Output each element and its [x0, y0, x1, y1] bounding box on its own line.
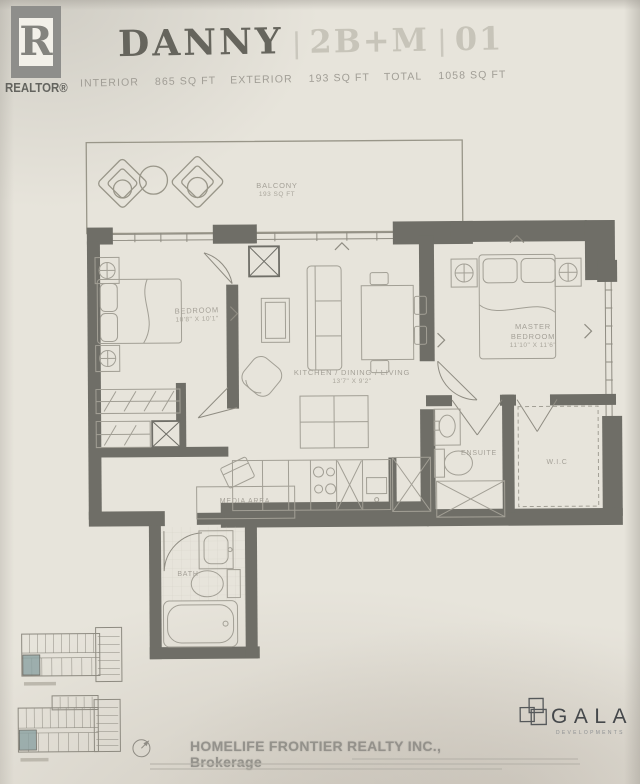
balcony-dim: 193 SQ FT — [256, 191, 297, 200]
floorplan-drawing — [0, 0, 640, 784]
master-bedroom-dim: 11'10" X 11'6" — [497, 342, 569, 351]
wic-outline — [517, 399, 599, 507]
bedroom-dim: 10'8" X 10'1" — [175, 315, 220, 325]
structural-columns — [151, 246, 280, 447]
bath-label: BATH — [177, 570, 198, 579]
developer-name: GALA — [551, 705, 633, 729]
developer-tagline: DEVELOPMENTS — [556, 730, 625, 736]
balcony-name: BALCONY — [256, 181, 297, 191]
floorplan-sheet: { "header": { "realtor_logo": { "letter"… — [0, 0, 640, 784]
master-bedroom-label: MASTER BEDROOM 11'10" X 11'6" — [497, 322, 569, 351]
balcony-table-icon — [139, 166, 167, 194]
ensuite-label: ENSUITE — [461, 449, 497, 458]
media-area-label: MEDIA AREA — [220, 497, 270, 506]
compass-icon — [133, 740, 150, 757]
brokerage-watermark: HOMELIFE FRONTIER REALTY INC., Brokerage — [190, 738, 490, 770]
disclaimer-line — [150, 768, 502, 770]
gala-logo-icon — [520, 698, 546, 724]
ensuite-fixtures — [434, 400, 505, 517]
master-bedroom-name: MASTER BEDROOM — [497, 322, 569, 342]
disclaimer-line — [150, 763, 580, 765]
keyplan-upper — [22, 627, 122, 685]
disclaimer-line — [352, 758, 578, 760]
bedroom-furniture — [95, 253, 233, 448]
balcony-label: BALCONY 193 SQ FT — [256, 181, 297, 200]
wic-label: W.I.C — [546, 458, 567, 467]
living-name: KITCHEN / DINING / LIVING — [294, 368, 410, 378]
balcony-chair-icon-2 — [171, 155, 225, 209]
keyplan-lower — [18, 695, 120, 761]
living-dim: 13'7" X 9'2" — [294, 378, 410, 387]
bedroom-label: BEDROOM 10'8" X 10'1" — [175, 305, 220, 325]
living-label: KITCHEN / DINING / LIVING 13'7" X 9'2" — [294, 368, 410, 387]
bath-fixtures — [161, 527, 246, 648]
